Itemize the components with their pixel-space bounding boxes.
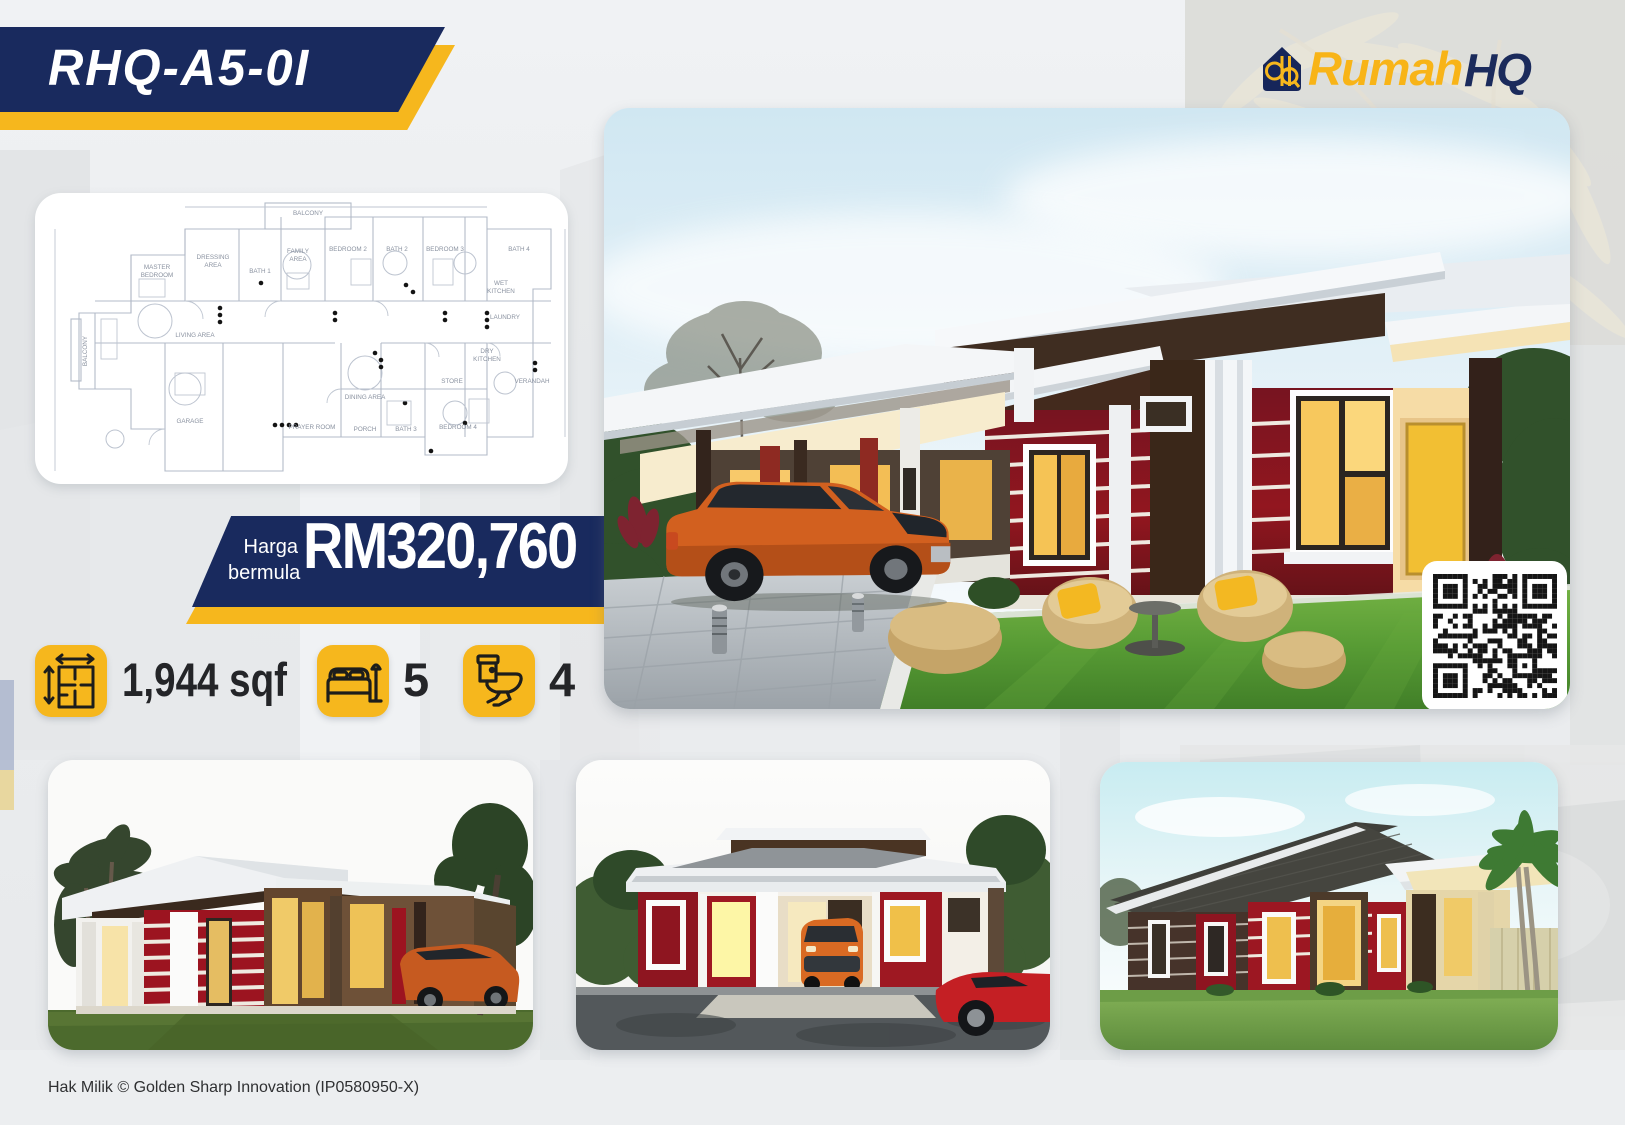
svg-text:STORE: STORE: [441, 378, 463, 385]
svg-text:VERANDAH: VERANDAH: [515, 378, 550, 385]
svg-text:KITCHEN: KITCHEN: [473, 356, 501, 363]
svg-text:BEDROOM 4: BEDROOM 4: [439, 424, 477, 431]
svg-text:BATH 3: BATH 3: [395, 426, 417, 433]
svg-text:Rumah: Rumah: [1308, 44, 1462, 95]
svg-text:BATH 2: BATH 2: [386, 246, 408, 253]
svg-text:FAMILY: FAMILY: [287, 248, 310, 255]
svg-text:BATH 4: BATH 4: [508, 246, 530, 253]
svg-text:PRAYER ROOM: PRAYER ROOM: [289, 424, 336, 431]
svg-text:AREA: AREA: [204, 262, 222, 269]
svg-text:DINING AREA: DINING AREA: [345, 394, 386, 401]
svg-text:BALCONY: BALCONY: [82, 335, 89, 366]
svg-text:BEDROOM 2: BEDROOM 2: [329, 246, 367, 253]
svg-text:MASTER: MASTER: [144, 264, 171, 271]
svg-text:LIVING AREA: LIVING AREA: [175, 332, 215, 339]
svg-text:WET: WET: [494, 280, 508, 287]
svg-text:GARAGE: GARAGE: [177, 418, 204, 425]
svg-text:DRY: DRY: [480, 348, 494, 355]
svg-text:BEDROOM: BEDROOM: [141, 272, 174, 279]
svg-text:LAUNDRY: LAUNDRY: [490, 314, 521, 321]
svg-text:BALCONY: BALCONY: [293, 210, 324, 217]
svg-text:PORCH: PORCH: [354, 426, 377, 433]
svg-text:BEDROOM 3: BEDROOM 3: [426, 246, 464, 253]
svg-text:DRESSING: DRESSING: [197, 254, 230, 261]
svg-text:HQ: HQ: [1464, 44, 1532, 96]
svg-text:KITCHEN: KITCHEN: [487, 288, 515, 295]
svg-text:BATH 1: BATH 1: [249, 268, 271, 275]
svg-text:AREA: AREA: [289, 256, 307, 263]
